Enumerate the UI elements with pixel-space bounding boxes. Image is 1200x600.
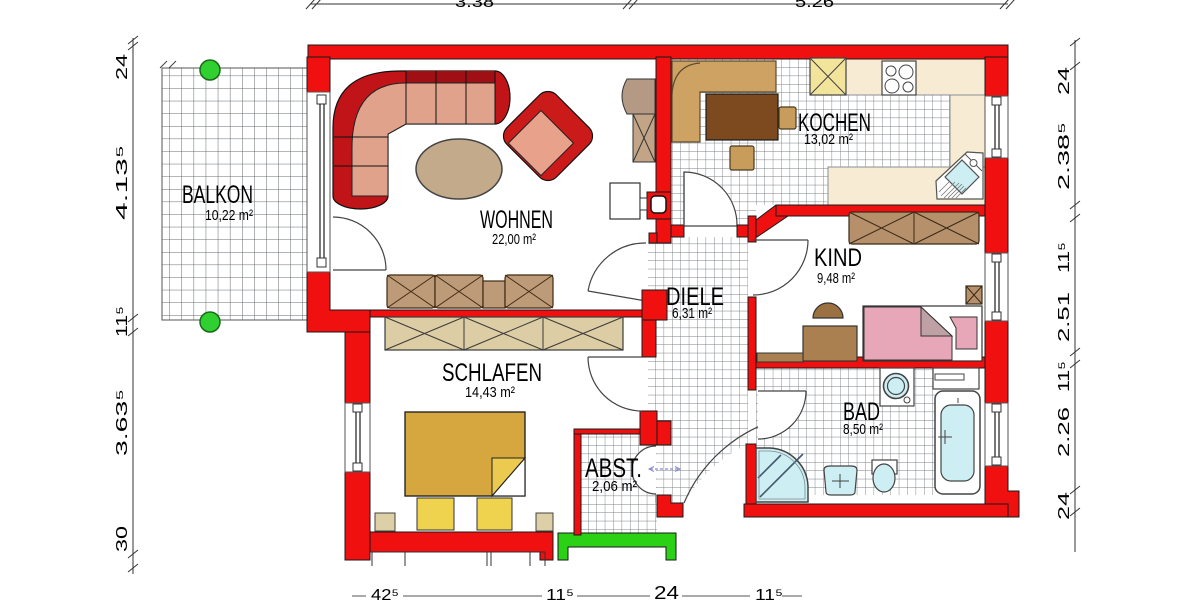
svg-text:3.63⁵: 3.63⁵: [114, 389, 131, 456]
svg-text:2.26: 2.26: [1056, 407, 1073, 457]
svg-text:KIND: KIND: [814, 244, 862, 272]
svg-text:13,02 m²: 13,02 m²: [804, 131, 853, 148]
svg-text:2.38⁵: 2.38⁵: [1056, 122, 1073, 190]
svg-text:11⁵: 11⁵: [755, 587, 783, 600]
svg-text:2,06 m²: 2,06 m²: [592, 478, 637, 495]
svg-text:24: 24: [654, 583, 679, 600]
svg-text:42⁵: 42⁵: [371, 587, 399, 600]
svg-text:24: 24: [1056, 492, 1073, 520]
svg-text:4.13⁵: 4.13⁵: [114, 145, 131, 220]
svg-text:11⁵: 11⁵: [1056, 361, 1073, 392]
svg-text:30: 30: [114, 526, 131, 552]
svg-text:11⁵: 11⁵: [114, 306, 131, 337]
svg-text:9,48 m²: 9,48 m²: [817, 270, 855, 287]
svg-text:10,22 m²: 10,22 m²: [205, 207, 253, 224]
svg-text:11⁵: 11⁵: [1056, 242, 1073, 273]
svg-text:3.38: 3.38: [455, 0, 494, 11]
svg-text:2.51: 2.51: [1056, 292, 1073, 342]
svg-text:14,43 m²: 14,43 m²: [465, 384, 515, 401]
svg-text:WOHNEN: WOHNEN: [480, 206, 553, 234]
svg-text:22,00 m²: 22,00 m²: [492, 231, 536, 248]
svg-text:5.26: 5.26: [795, 0, 834, 11]
svg-text:6,31 m²: 6,31 m²: [672, 305, 712, 322]
svg-text:BALKON: BALKON: [182, 181, 253, 209]
svg-text:24: 24: [114, 54, 131, 80]
svg-text:24: 24: [1056, 67, 1073, 95]
svg-text:SCHLAFEN: SCHLAFEN: [442, 359, 542, 387]
svg-text:11⁵: 11⁵: [546, 587, 574, 600]
svg-text:8,50 m²: 8,50 m²: [843, 421, 883, 438]
